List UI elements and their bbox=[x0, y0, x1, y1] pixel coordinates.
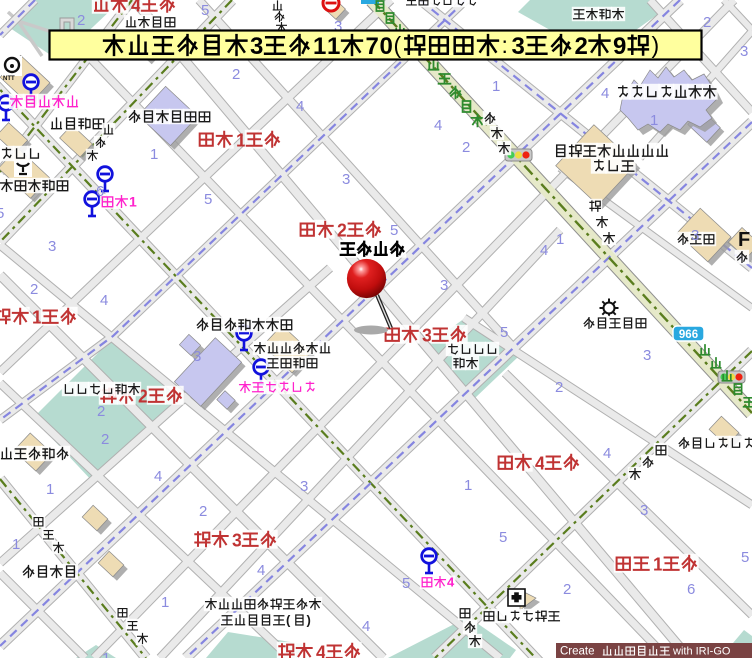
svg-text:3: 3 bbox=[740, 43, 748, 60]
svg-text:1: 1 bbox=[161, 594, 169, 611]
svg-text:1: 1 bbox=[313, 33, 326, 60]
svg-text:966: 966 bbox=[679, 329, 698, 341]
svg-text:3: 3 bbox=[250, 33, 263, 60]
svg-text:3: 3 bbox=[342, 171, 350, 188]
svg-text:3: 3 bbox=[643, 347, 651, 364]
svg-text:1: 1 bbox=[12, 536, 20, 553]
svg-text:1: 1 bbox=[150, 146, 158, 163]
svg-text:2: 2 bbox=[563, 581, 571, 598]
svg-text:4: 4 bbox=[540, 242, 548, 259]
svg-text:1: 1 bbox=[327, 33, 340, 60]
svg-text:2: 2 bbox=[199, 503, 207, 520]
svg-text:3: 3 bbox=[193, 348, 201, 365]
svg-text:4: 4 bbox=[154, 468, 162, 485]
svg-text:1: 1 bbox=[556, 231, 564, 248]
svg-text:4: 4 bbox=[131, 0, 141, 16]
svg-text:5: 5 bbox=[201, 2, 209, 19]
svg-text:2: 2 bbox=[30, 281, 38, 298]
svg-text:3: 3 bbox=[440, 277, 448, 294]
svg-text:5: 5 bbox=[204, 191, 212, 208]
svg-text:4: 4 bbox=[601, 85, 609, 102]
svg-text:4: 4 bbox=[434, 117, 442, 134]
svg-text:1: 1 bbox=[32, 308, 42, 328]
svg-text:1: 1 bbox=[492, 78, 500, 95]
svg-text:0: 0 bbox=[380, 33, 393, 60]
svg-text::: : bbox=[502, 32, 508, 58]
svg-text:3: 3 bbox=[300, 478, 308, 495]
svg-text:5: 5 bbox=[500, 324, 508, 341]
svg-text:F: F bbox=[738, 229, 750, 251]
svg-text:4: 4 bbox=[257, 562, 265, 579]
svg-text:(: ( bbox=[394, 32, 402, 58]
svg-text:9: 9 bbox=[613, 33, 626, 60]
svg-text:6: 6 bbox=[687, 581, 695, 598]
svg-text:Create: Create bbox=[560, 646, 595, 658]
svg-text:5: 5 bbox=[402, 575, 410, 592]
svg-text:1: 1 bbox=[464, 477, 472, 494]
svg-text:5: 5 bbox=[390, 222, 398, 239]
svg-text:1: 1 bbox=[102, 650, 110, 658]
svg-text:1: 1 bbox=[653, 555, 663, 575]
svg-text:1: 1 bbox=[236, 131, 246, 151]
svg-text:4: 4 bbox=[447, 575, 455, 590]
svg-text:): ) bbox=[652, 32, 660, 58]
svg-text:7: 7 bbox=[366, 33, 379, 60]
svg-text:1: 1 bbox=[129, 194, 137, 210]
svg-text:1: 1 bbox=[650, 112, 658, 129]
svg-text:4: 4 bbox=[603, 445, 611, 462]
svg-text:5: 5 bbox=[741, 549, 749, 566]
svg-text:2: 2 bbox=[337, 221, 347, 241]
svg-text:5: 5 bbox=[499, 529, 507, 546]
svg-text:2: 2 bbox=[101, 431, 109, 448]
svg-text:1: 1 bbox=[46, 481, 54, 498]
svg-text:3: 3 bbox=[691, 227, 699, 244]
svg-text:2: 2 bbox=[575, 33, 588, 60]
svg-text:3: 3 bbox=[422, 326, 432, 346]
svg-text:3: 3 bbox=[232, 531, 242, 551]
svg-text:2: 2 bbox=[703, 14, 711, 31]
svg-text:2: 2 bbox=[555, 379, 563, 396]
svg-text:2: 2 bbox=[97, 403, 105, 420]
svg-text:6: 6 bbox=[96, 183, 104, 200]
svg-text:NTT: NTT bbox=[3, 76, 15, 82]
svg-text:2: 2 bbox=[462, 139, 470, 156]
svg-text:3: 3 bbox=[512, 33, 525, 60]
svg-text:4: 4 bbox=[535, 454, 545, 474]
svg-text:3: 3 bbox=[48, 238, 56, 255]
svg-text:4: 4 bbox=[296, 98, 304, 115]
svg-text:(: ( bbox=[286, 613, 291, 628]
svg-text:5: 5 bbox=[0, 205, 4, 222]
svg-text:3: 3 bbox=[640, 502, 648, 519]
svg-text:4: 4 bbox=[100, 292, 108, 309]
svg-text:4: 4 bbox=[316, 643, 326, 658]
svg-text:): ) bbox=[306, 613, 310, 628]
svg-text:with IRI-GO: with IRI-GO bbox=[672, 646, 731, 658]
svg-text:2: 2 bbox=[232, 66, 240, 83]
svg-text:4: 4 bbox=[362, 618, 370, 635]
svg-text:2: 2 bbox=[77, 12, 85, 29]
